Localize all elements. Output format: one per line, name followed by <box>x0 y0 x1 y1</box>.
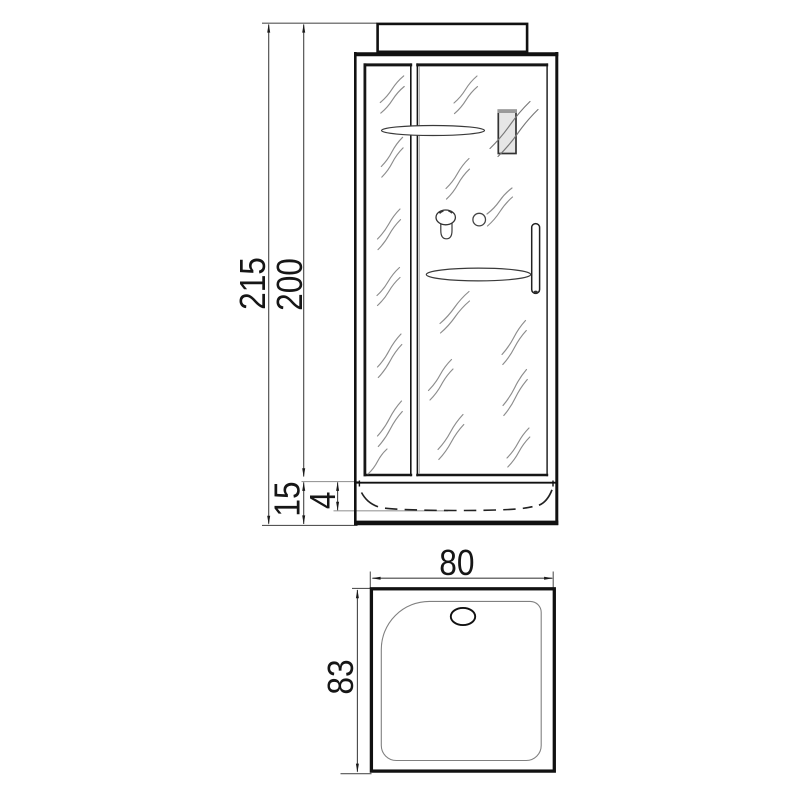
svg-text:4: 4 <box>303 491 343 509</box>
svg-text:83: 83 <box>321 659 361 694</box>
svg-text:80: 80 <box>439 543 474 583</box>
svg-text:200: 200 <box>270 258 310 311</box>
svg-text:215: 215 <box>233 257 273 310</box>
svg-text:15: 15 <box>268 481 308 516</box>
